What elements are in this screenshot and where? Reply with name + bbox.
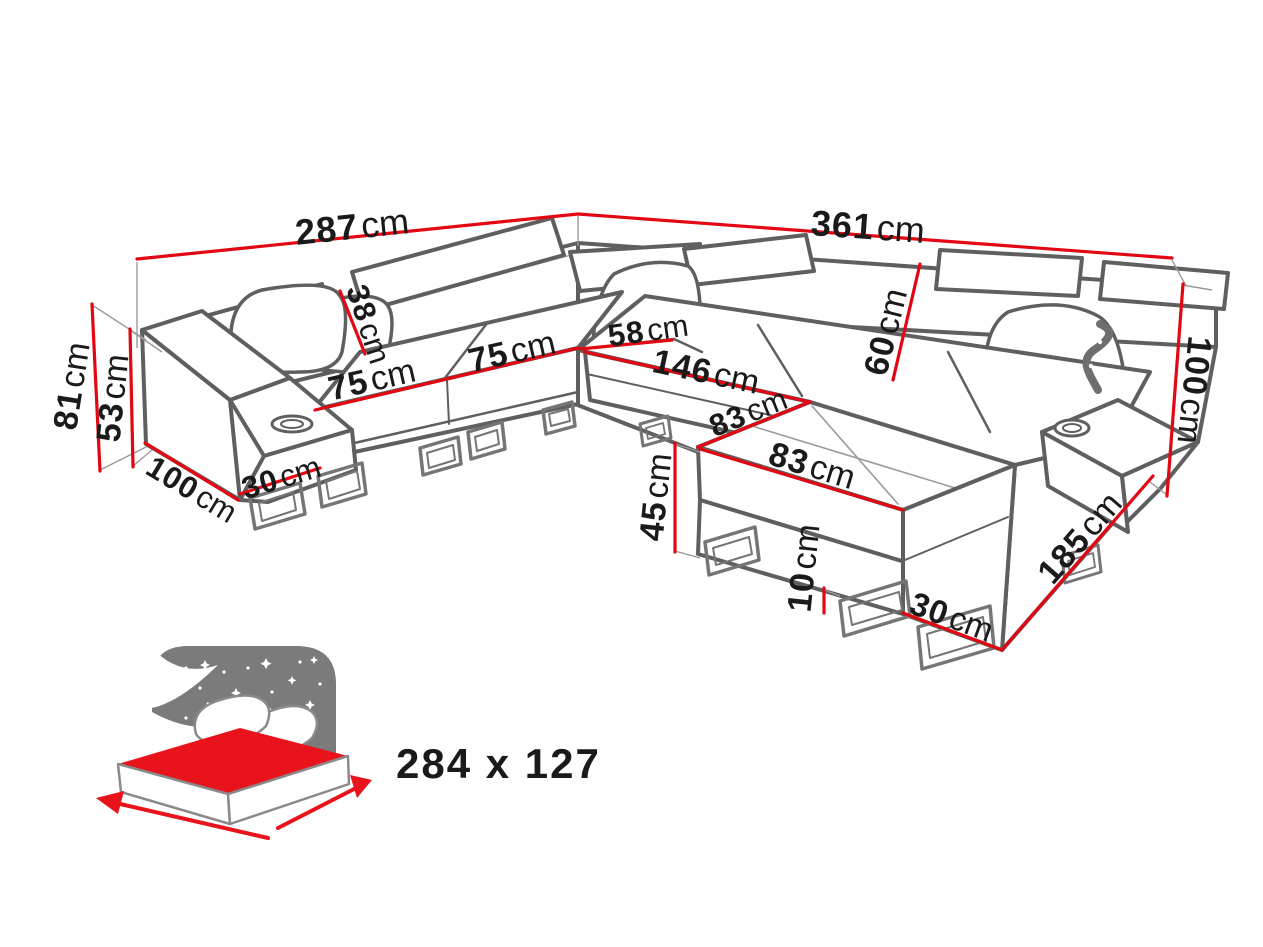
dim-label-361: 361cm — [810, 202, 927, 251]
sofa-line-art — [142, 218, 1228, 669]
dim-label-287: 287cm — [293, 200, 411, 253]
headrest — [1100, 262, 1228, 309]
headrest — [936, 250, 1082, 296]
sofa-foot — [420, 437, 461, 475]
dim-label-10: 10cm — [780, 522, 827, 614]
dim-label-45: 45cm — [632, 451, 679, 543]
sleeping-size-label: 284 x 127 — [396, 740, 601, 787]
dim-label-53: 53cm — [89, 352, 136, 444]
cupholder-icon-inner — [281, 420, 303, 428]
bed-icon — [96, 646, 372, 838]
dim-label-81: 81cm — [46, 339, 97, 432]
cupholder-icon-inner — [1063, 424, 1081, 432]
sofa-dimension-diagram: 287cm 361cm 81cm 53cm 100cm 30cm 38cm 75… — [0, 0, 1263, 947]
